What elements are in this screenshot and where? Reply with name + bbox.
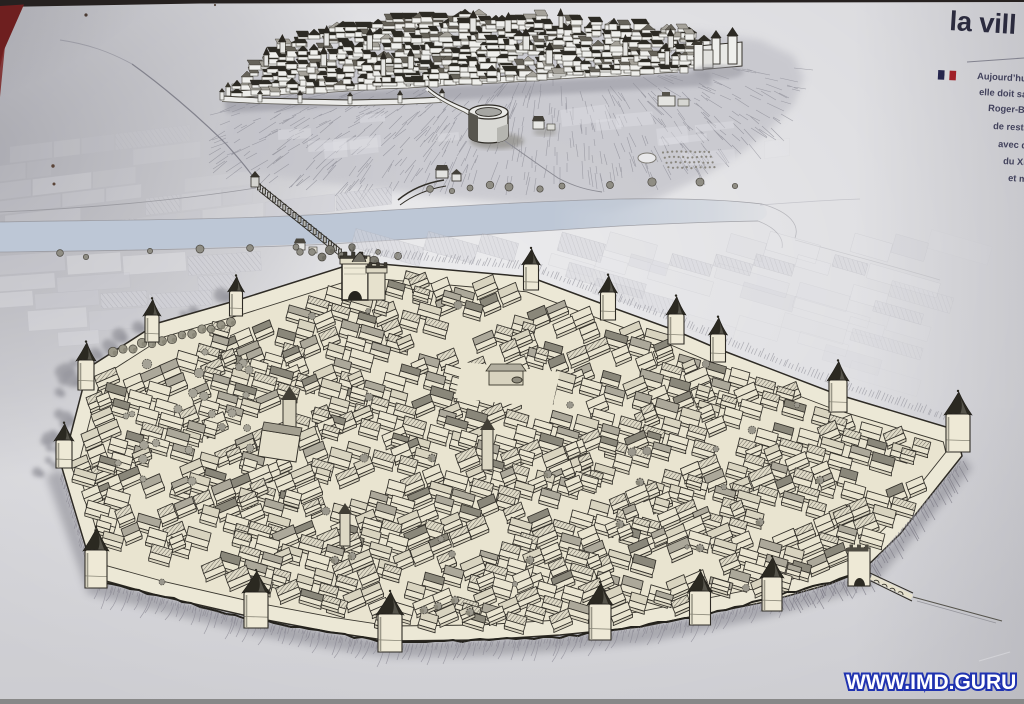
svg-text:la vill: la vill xyxy=(949,5,1017,40)
svg-text:WWW.IMD.GURU: WWW.IMD.GURU xyxy=(846,671,1016,694)
